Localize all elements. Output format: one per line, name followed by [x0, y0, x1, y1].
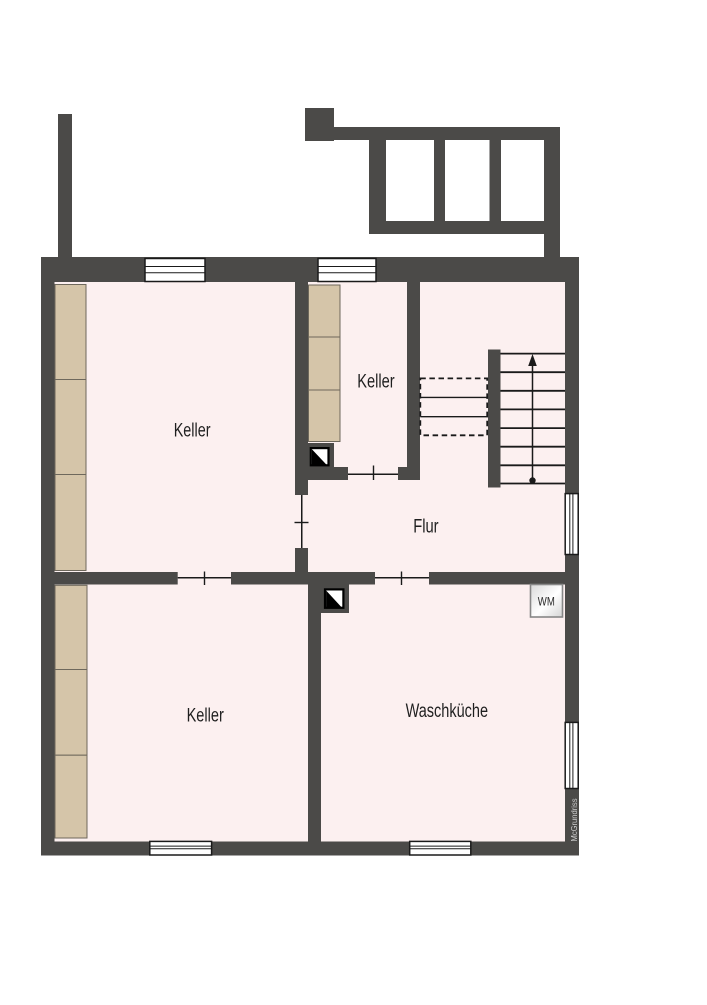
svg-text:Keller: Keller	[357, 372, 395, 393]
svg-text:Keller: Keller	[174, 421, 211, 442]
svg-text:McGrundriss: McGrundriss	[570, 799, 579, 842]
svg-text:WM: WM	[538, 595, 555, 609]
svg-text:Flur: Flur	[413, 517, 439, 538]
svg-text:Keller: Keller	[187, 705, 225, 726]
svg-text:Waschküche: Waschküche	[406, 701, 488, 722]
